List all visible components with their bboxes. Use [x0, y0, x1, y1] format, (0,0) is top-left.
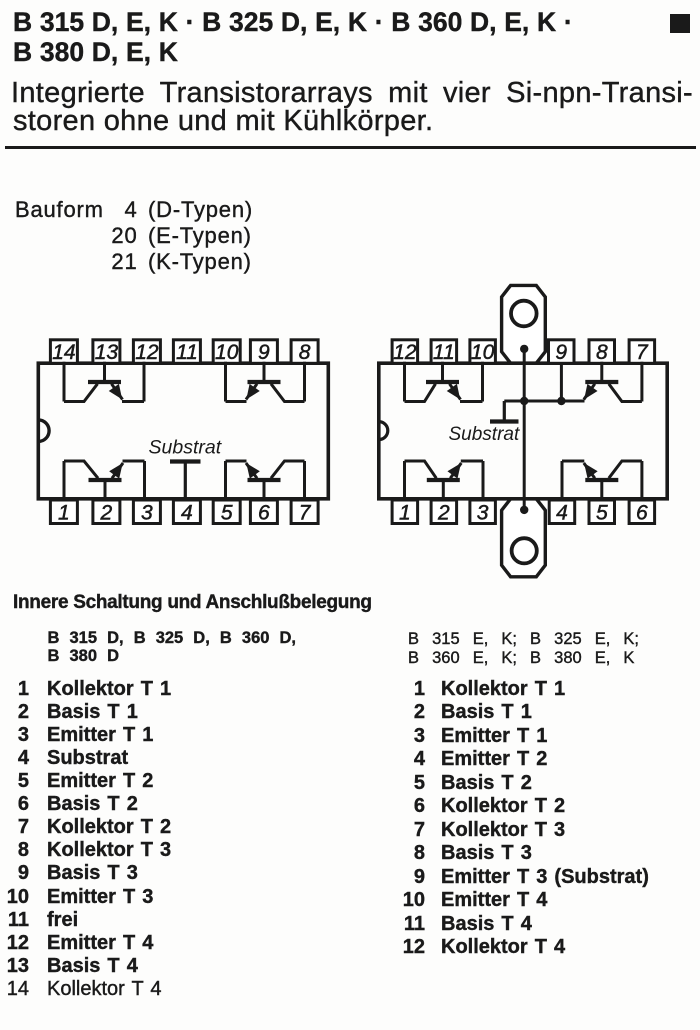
- svg-text:4: 4: [556, 501, 568, 524]
- svg-text:10: 10: [215, 341, 239, 364]
- svg-text:3: 3: [141, 501, 153, 524]
- svg-text:1: 1: [58, 501, 70, 524]
- svg-text:9: 9: [555, 341, 567, 364]
- svg-text:9: 9: [258, 341, 270, 364]
- svg-text:5: 5: [596, 501, 608, 524]
- svg-text:10: 10: [471, 341, 495, 364]
- svg-text:2: 2: [100, 501, 113, 524]
- svg-text:4: 4: [181, 501, 193, 524]
- svg-text:3: 3: [477, 501, 489, 524]
- svg-text:7: 7: [299, 501, 312, 524]
- svg-text:7: 7: [636, 341, 649, 364]
- svg-text:6: 6: [258, 501, 270, 524]
- svg-text:2: 2: [437, 501, 450, 524]
- svg-text:8: 8: [299, 341, 311, 364]
- svg-text:8: 8: [596, 341, 608, 364]
- svg-text:11: 11: [433, 341, 455, 364]
- svg-text:6: 6: [636, 501, 648, 524]
- svg-text:12: 12: [135, 341, 159, 364]
- svg-text:1: 1: [399, 501, 411, 524]
- svg-text:13: 13: [95, 341, 119, 364]
- svg-text:Substrat: Substrat: [149, 437, 223, 459]
- svg-text:12: 12: [393, 341, 417, 364]
- svg-text:5: 5: [221, 501, 233, 524]
- svg-text:14: 14: [52, 341, 75, 364]
- svg-text:Substrat: Substrat: [449, 424, 520, 445]
- svg-text:11: 11: [176, 341, 198, 364]
